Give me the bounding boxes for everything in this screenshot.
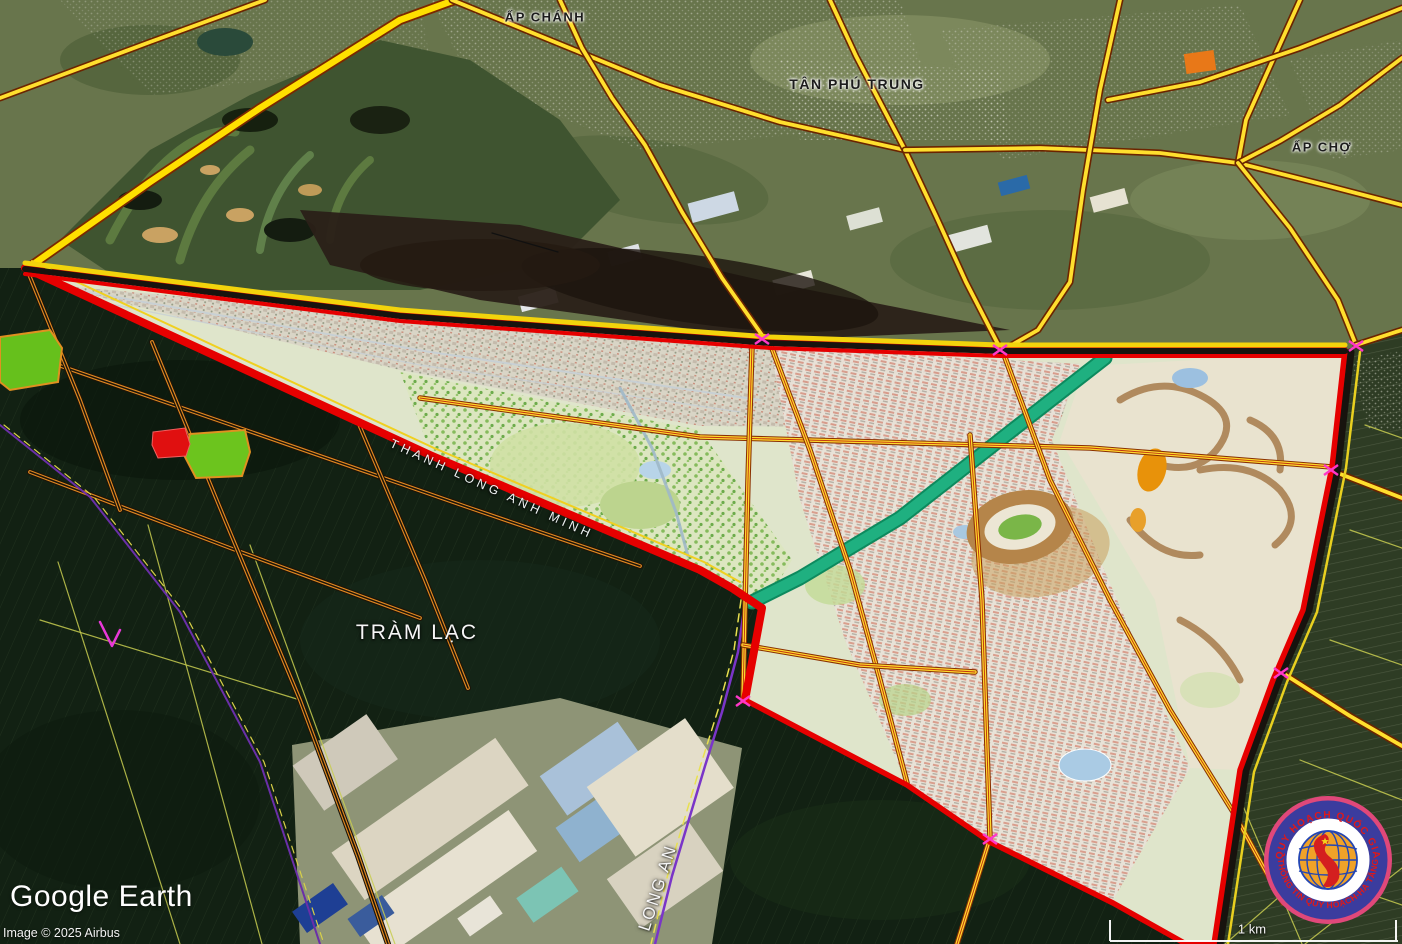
satellite-map-canvas — [0, 0, 1402, 944]
google-earth-viewport[interactable]: ẤP CHÁNH TÂN PHÚ TRUNG ẤP CHỢ TRÀM LẠC L… — [0, 0, 1402, 944]
google-earth-logo: Google Earth — [10, 880, 193, 914]
imagery-attribution: Image © 2025 Airbus — [3, 926, 120, 940]
quy-hoach-stamp-logo: QUY HOẠCH QUỐC GIA THÔNG TIN QUY HOẠCH-H… — [1262, 794, 1394, 926]
industrial-zone — [292, 698, 742, 944]
